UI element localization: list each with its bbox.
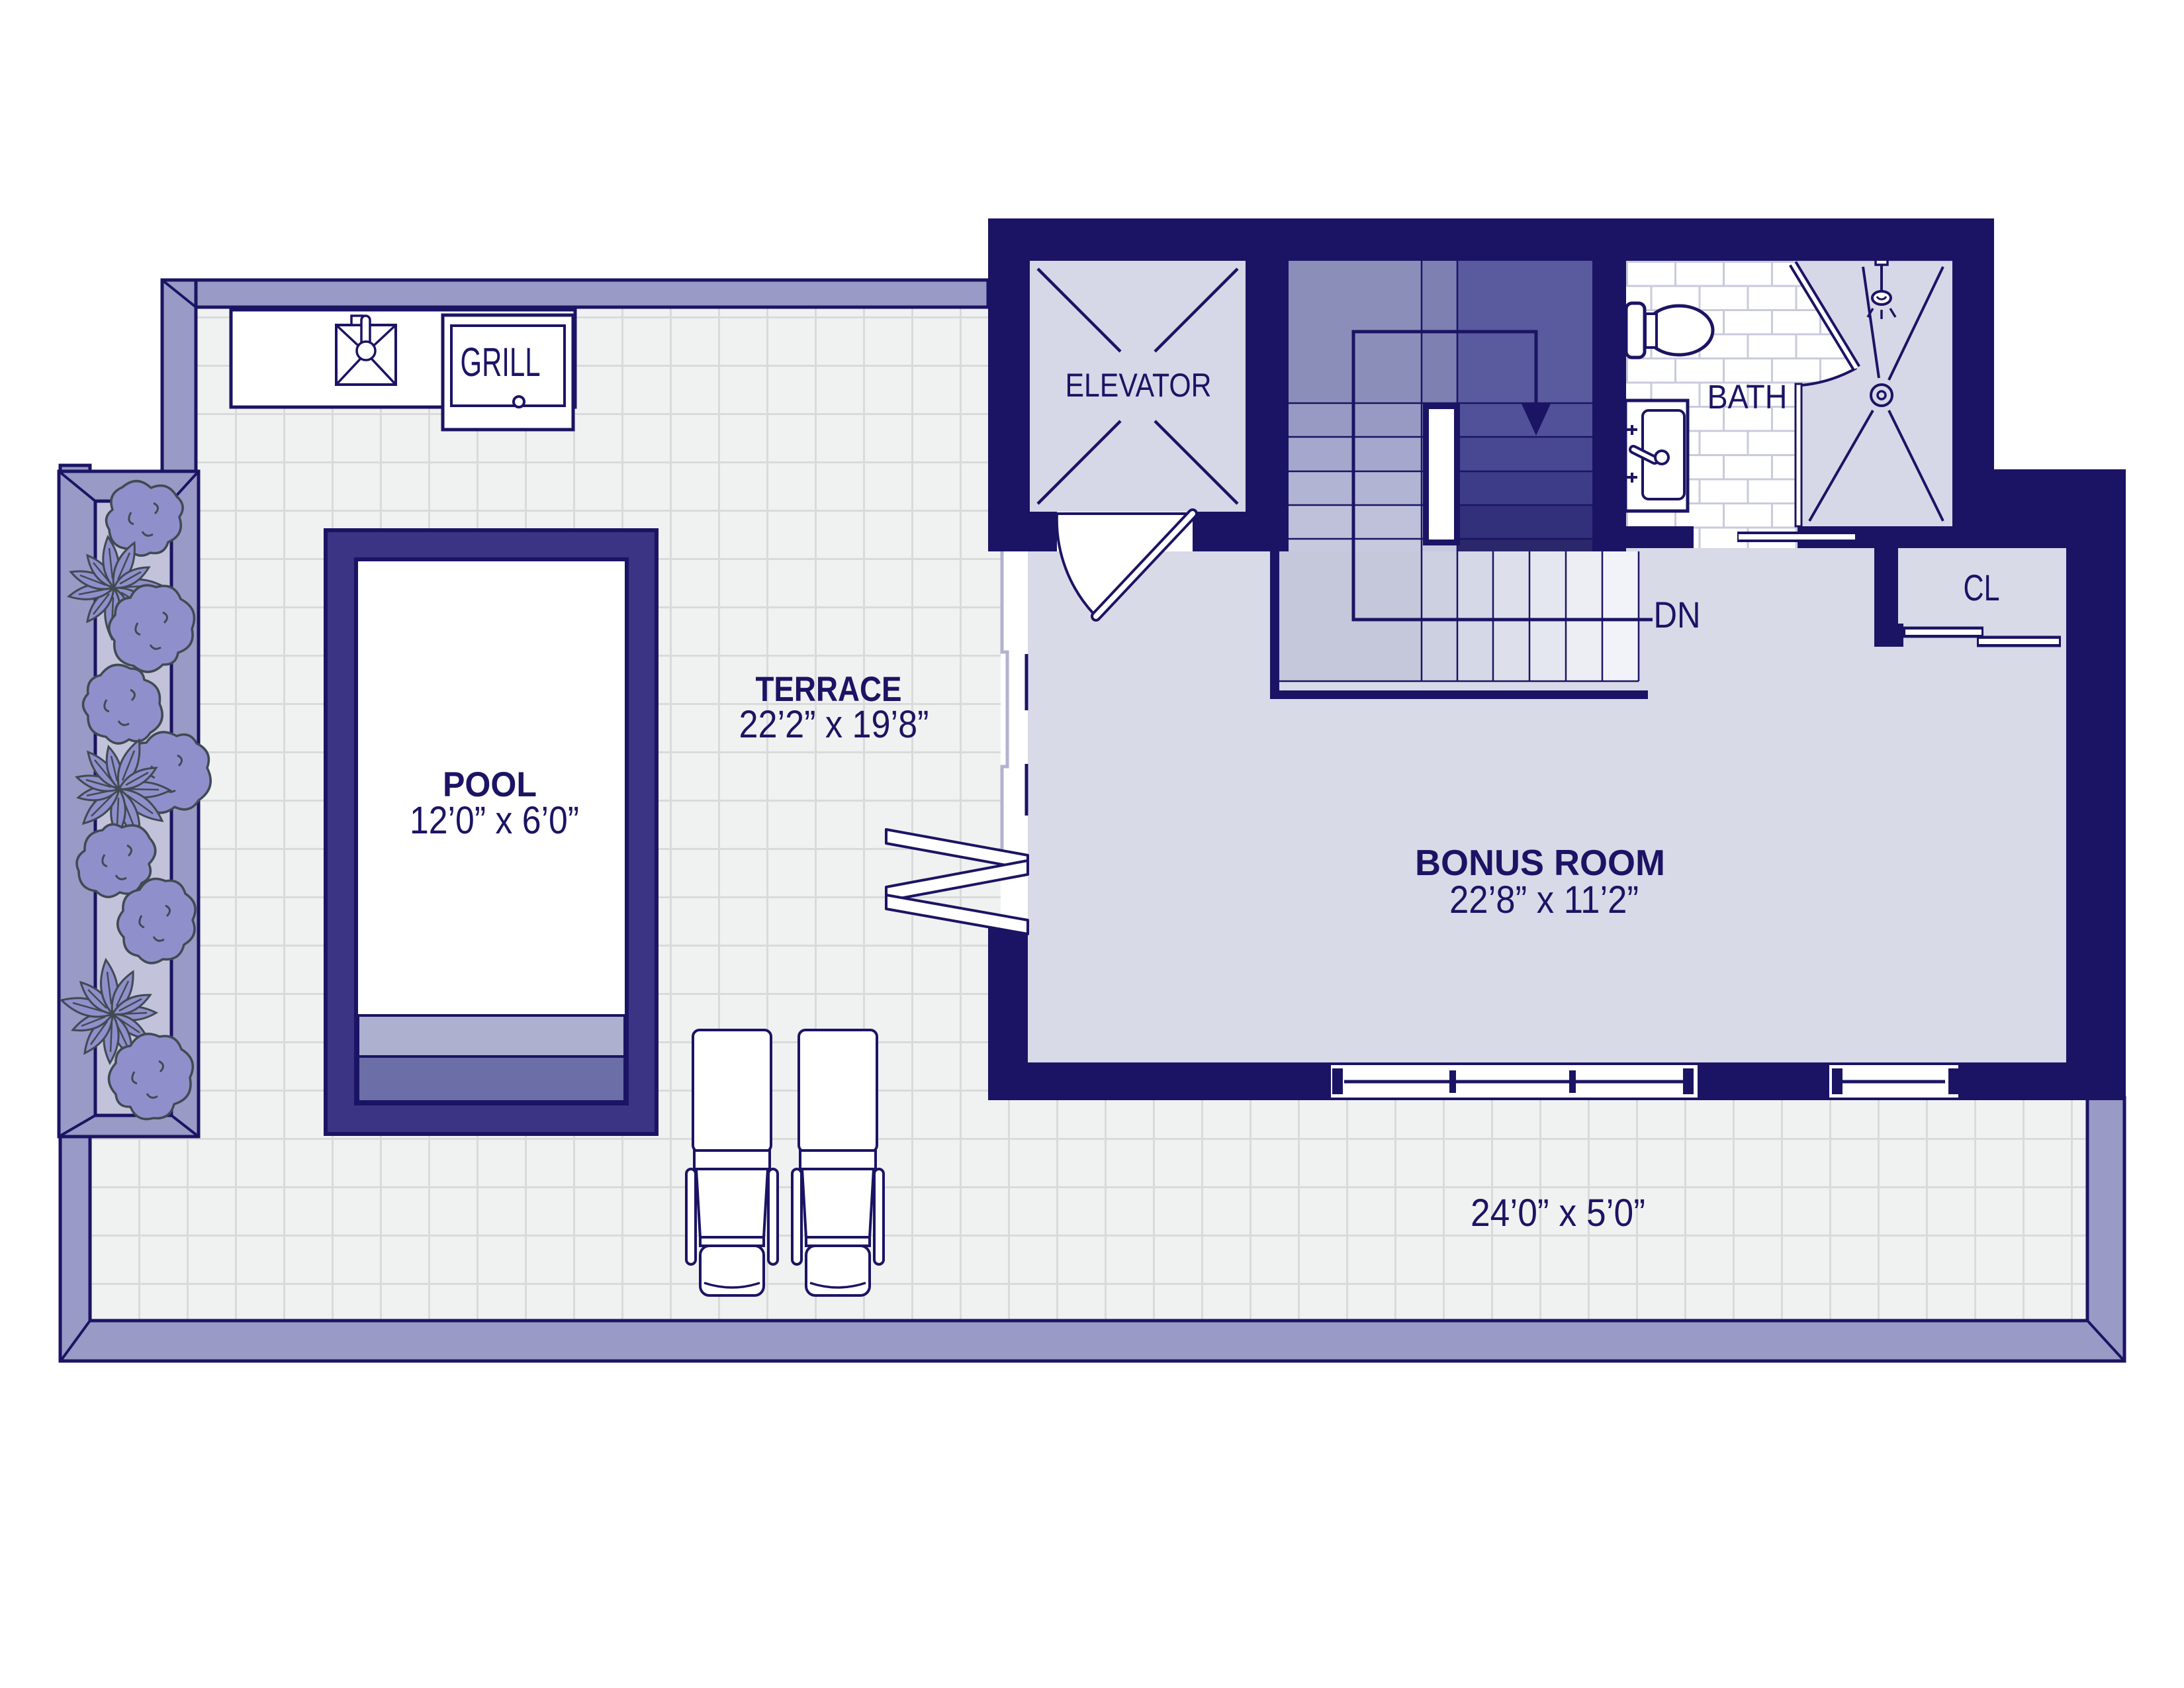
svg-text:24’0” x 5’0”: 24’0” x 5’0”	[1471, 1192, 1645, 1235]
svg-text:22’2” x 19’8”: 22’2” x 19’8”	[739, 703, 929, 746]
svg-text:GRILL: GRILL	[461, 340, 541, 385]
svg-text:22’8” x 11’2”: 22’8” x 11’2”	[1449, 878, 1639, 921]
svg-text:12’0” x 6’0”: 12’0” x 6’0”	[410, 799, 579, 842]
svg-text:BATH: BATH	[1707, 378, 1788, 416]
svg-text:BONUS ROOM: BONUS ROOM	[1415, 842, 1665, 883]
svg-text:DN: DN	[1654, 594, 1701, 635]
svg-text:ELEVATOR: ELEVATOR	[1066, 367, 1212, 404]
svg-text:CL: CL	[1964, 567, 2000, 608]
